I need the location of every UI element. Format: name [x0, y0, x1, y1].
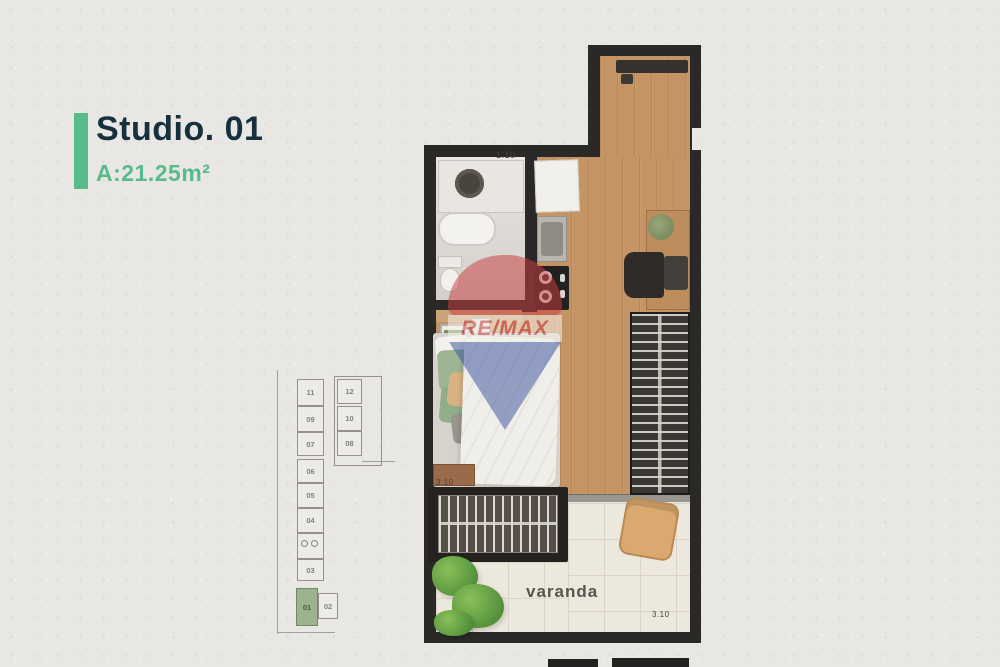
wall-top [588, 45, 701, 56]
page-title: Studio. 01 [96, 110, 263, 149]
desk-plant [648, 214, 674, 240]
balloon-blue-cone [449, 342, 561, 430]
balloon-white-band: RE/MAX [448, 315, 562, 342]
bathroom-dimension-label: 1.10 [496, 150, 516, 160]
remax-watermark-balloon-icon: RE/MAX [447, 252, 565, 438]
keyplan-unit-04: 04 [297, 508, 324, 533]
keyplan-unit-09: 09 [297, 406, 324, 432]
keyplan-unit-11: 11 [297, 379, 324, 406]
bathtub [438, 212, 496, 246]
title-accent-bar [74, 113, 88, 189]
keyplan-unit-12: 12 [337, 379, 362, 404]
entry-shoe-rack [621, 74, 633, 84]
keyplan-unit-01-highlighted: 01 [296, 588, 318, 626]
balcony-sliding-door [558, 494, 690, 502]
balloon-red-dome [448, 255, 562, 316]
balcony-label: varanda [526, 582, 598, 602]
cropped-footer-mark [612, 658, 689, 667]
keyplan-unit-10: 10 [337, 406, 362, 431]
keyplan-utility-block [297, 533, 324, 559]
keyplan-unit-08: 08 [337, 431, 362, 456]
keyplan-boundary-line [277, 370, 278, 634]
keyplan-unit-06: 06 [297, 459, 324, 483]
hall-closet-rail [438, 495, 558, 553]
kitchen-sink-basin [541, 222, 563, 256]
watermark-brand-text: RE/MAX [461, 317, 549, 341]
wardrobe-closet [630, 312, 690, 495]
floorplan-page: { "header": { "title": "Studio. 01", "ar… [0, 0, 1000, 667]
keyplan-unit-03: 03 [297, 559, 324, 581]
wall-right-door-notch [692, 128, 701, 150]
keyplan-elevator-icon [301, 540, 308, 547]
unit-area: A:21.25m² [96, 160, 210, 187]
keyplan-unit-05: 05 [297, 483, 324, 508]
wall-entry-left [588, 45, 600, 157]
bed-dimension-label: 3.10 [436, 478, 454, 487]
building-keyplan: 11 12 09 10 07 08 06 05 04 03 01 02 [277, 368, 395, 648]
desk-chair [624, 252, 664, 298]
keyplan-elevator-icon [311, 540, 318, 547]
keyplan-unit-02: 02 [318, 593, 338, 619]
desk-monitor [664, 256, 688, 290]
entry-door-mat [616, 60, 688, 73]
washing-machine [455, 169, 484, 198]
cropped-footer-mark [548, 659, 598, 667]
keyplan-boundary-line [277, 632, 335, 633]
fridge [534, 159, 580, 213]
balcony-chair [617, 496, 680, 562]
keyplan-unit-07: 07 [297, 432, 324, 456]
balcony-dimension-label: 3.10 [652, 610, 670, 619]
balcony-plant [434, 610, 474, 636]
